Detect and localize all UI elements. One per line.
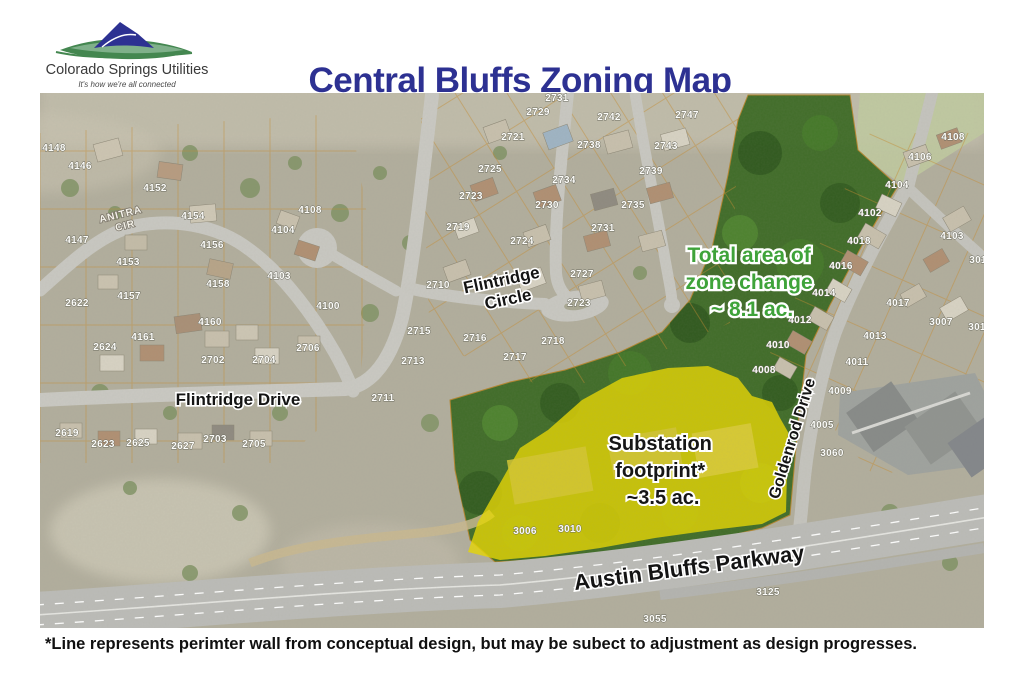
- parcel-label: 4016: [829, 261, 853, 272]
- parcel-label: 2716: [463, 333, 487, 344]
- parcel-label: 4160: [198, 317, 222, 328]
- parcel-label: 4154: [181, 211, 205, 222]
- parcel-label: 4013: [863, 331, 887, 342]
- parcel-label: 301: [968, 322, 984, 333]
- logo-name: Colorado Springs Utilities: [42, 62, 212, 78]
- parcel-label: 4158: [206, 279, 230, 290]
- parcel-label: 4104: [885, 180, 909, 191]
- parcel-label: 2729: [526, 107, 550, 118]
- parcel-label: 4161: [131, 332, 155, 343]
- aerial-map-canvas: 4148414641524154414741564153415841572622…: [40, 93, 984, 628]
- parcel-label: 4108: [941, 132, 965, 143]
- parcel-label: 4102: [858, 208, 882, 219]
- parcel-label: 4103: [267, 271, 291, 282]
- parcel-label: 4148: [42, 143, 66, 154]
- parcel-label: 4108: [298, 205, 322, 216]
- parcel-label: 4153: [116, 257, 140, 268]
- parcel-label: 2725: [478, 164, 502, 175]
- parcel-label: 2734: [552, 175, 576, 186]
- parcel-label: 2731: [591, 223, 615, 234]
- parcel-label: 2727: [570, 269, 594, 280]
- parcel-label: 3125: [756, 587, 780, 598]
- parcel-label: 2710: [426, 280, 450, 291]
- parcel-label: 3007: [929, 317, 953, 328]
- parcel-label: 2622: [65, 298, 89, 309]
- zoning-map: 4148414641524154414741564153415841572622…: [40, 93, 984, 628]
- footer-disclaimer: *Line represents perimter wall from conc…: [45, 635, 995, 654]
- parcel-label: 4104: [271, 225, 295, 236]
- parcel-label: 2719: [446, 222, 470, 233]
- parcel-label: 2723: [459, 191, 483, 202]
- parcel-label: 2735: [621, 200, 645, 211]
- parcel-label: 3010: [558, 524, 582, 535]
- parcel-label: 4156: [200, 240, 224, 251]
- logo-tagline: It's how we're all connected: [42, 80, 212, 89]
- parcel-label: 4018: [847, 236, 871, 247]
- parcel-label: 4157: [117, 291, 141, 302]
- parcel-label: 4008: [752, 365, 776, 376]
- parcel-label: 2625: [126, 438, 150, 449]
- page-header: Colorado Springs Utilities It's how we'r…: [0, 0, 1024, 93]
- csu-logo: Colorado Springs Utilities It's how we'r…: [42, 10, 212, 88]
- parcel-label: 2723: [567, 298, 591, 309]
- parcel-label: 2623: [91, 439, 115, 450]
- parcel-label: 2721: [501, 132, 525, 143]
- parcel-label: 2738: [577, 140, 601, 151]
- parcel-label: 4010: [766, 340, 790, 351]
- parcel-label: 3006: [513, 526, 537, 537]
- parcel-label: 2731: [545, 93, 569, 104]
- parcel-label: 2742: [597, 112, 621, 123]
- street-label-flintridge-drive: Flintridge Drive: [176, 390, 301, 409]
- parcel-label: 2711: [372, 393, 395, 404]
- parcel-label: 4106: [908, 152, 932, 163]
- parcel-label: 2702: [201, 355, 225, 366]
- parcel-label: 2718: [541, 336, 565, 347]
- parcel-label: 4103: [940, 231, 964, 242]
- parcel-label: 2724: [510, 236, 534, 247]
- parcel-label: 2730: [535, 200, 559, 211]
- parcel-label: 4100: [316, 301, 340, 312]
- parcel-label: 3055: [643, 614, 667, 625]
- parcel-label: 2747: [675, 110, 699, 121]
- parcel-label: 2627: [171, 441, 195, 452]
- parcel-label: 2739: [639, 166, 663, 177]
- parcel-label: 2703: [203, 434, 227, 445]
- parcel-label: 3060: [820, 448, 844, 459]
- parcel-label: 4147: [65, 235, 89, 246]
- parcel-label: 4017: [886, 298, 910, 309]
- parcel-label: 4005: [810, 420, 834, 431]
- parcel-label: 2717: [503, 352, 527, 363]
- parcel-label: 2706: [296, 343, 320, 354]
- parcel-label: 4011: [846, 357, 869, 368]
- parcel-label: 4009: [828, 386, 852, 397]
- parcel-label: 2705: [242, 439, 266, 450]
- parcel-label: 2624: [93, 342, 117, 353]
- parcel-label: 4146: [68, 161, 92, 172]
- parcel-label: 301: [969, 255, 984, 266]
- parcel-label: 2704: [252, 355, 276, 366]
- parcel-label: 4152: [143, 183, 167, 194]
- parcel-label: 2619: [55, 428, 79, 439]
- parcel-label: 2715: [407, 326, 431, 337]
- parcel-label: 2743: [654, 141, 678, 152]
- parcel-label: 2713: [401, 356, 425, 367]
